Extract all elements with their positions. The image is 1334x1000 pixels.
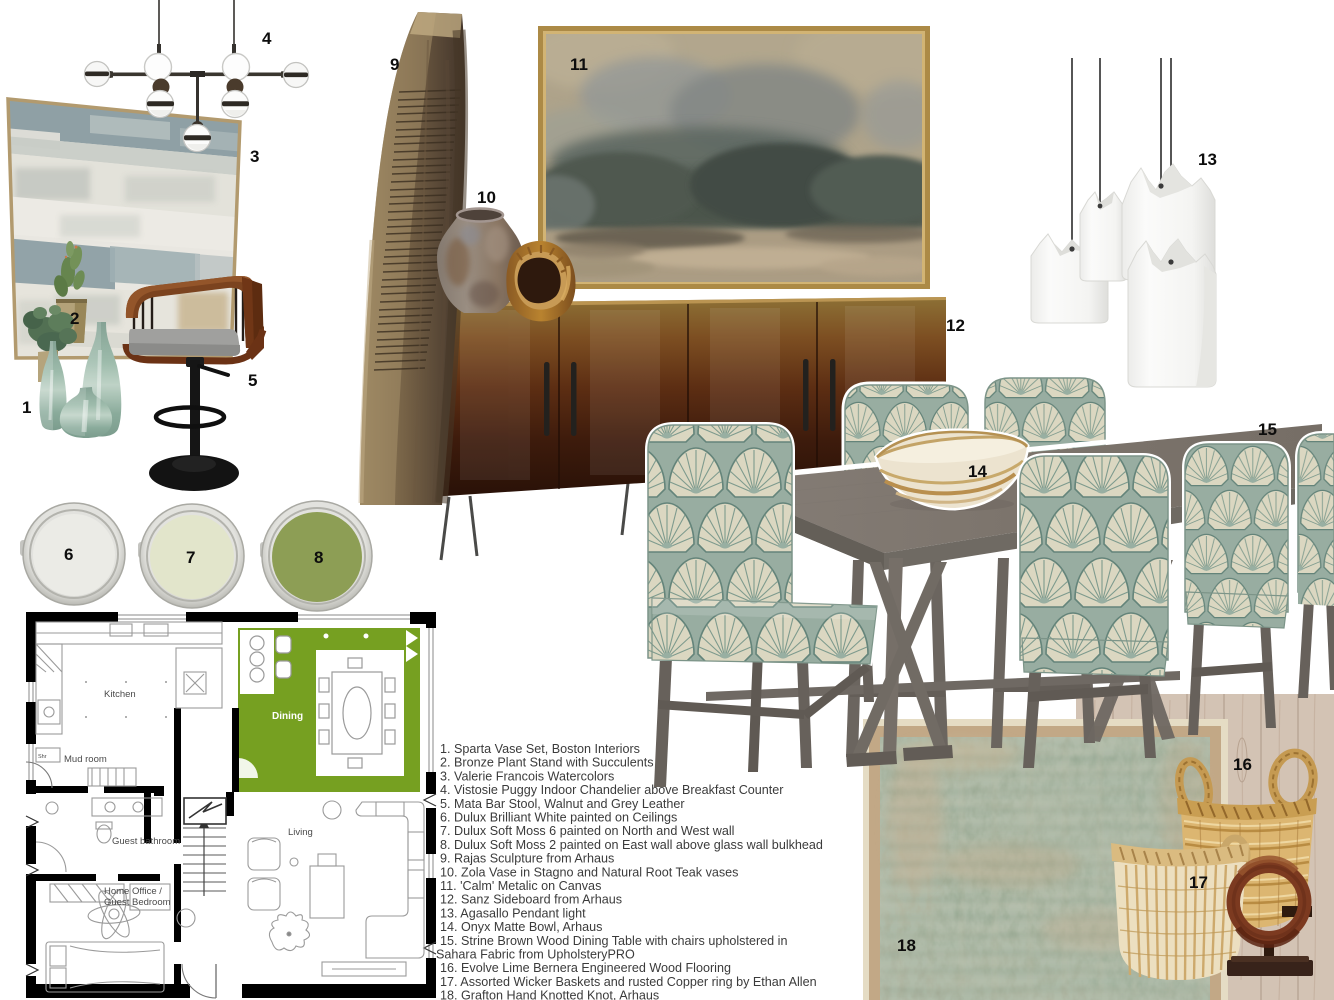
svg-text:10. Zola Vase in Stagno and Na: 10. Zola Vase in Stagno and Natural Root… (440, 865, 738, 879)
svg-text:16: 16 (1233, 755, 1252, 774)
svg-text:Sahara Fabric from UpholsteryP: Sahara Fabric from UpholsteryPRO (436, 948, 635, 962)
svg-text:11. 'Calm' Metalic on Canvas: 11. 'Calm' Metalic on Canvas (440, 879, 601, 893)
svg-text:12: 12 (946, 316, 965, 335)
svg-text:6: 6 (64, 545, 73, 564)
svg-text:13. Agasallo Pendant light: 13. Agasallo Pendant light (440, 906, 586, 920)
svg-text:18: 18 (897, 936, 916, 955)
svg-text:11: 11 (570, 55, 588, 74)
svg-text:18. Grafton Hand Knotted Knot,: 18. Grafton Hand Knotted Knot, Arhaus (440, 989, 659, 1000)
svg-text:Living: Living (288, 827, 313, 838)
svg-text:Guest bathroom: Guest bathroom (112, 836, 180, 847)
svg-text:2: 2 (70, 309, 79, 328)
svg-text:10: 10 (477, 188, 496, 207)
svg-text:8: 8 (314, 548, 323, 567)
svg-text:14: 14 (968, 462, 987, 481)
svg-text:6. Dulux Brilliant White paint: 6. Dulux Brilliant White painted on Ceil… (440, 811, 677, 825)
svg-text:Dining: Dining (272, 711, 303, 722)
svg-text:4: 4 (262, 29, 272, 48)
svg-text:Shr: Shr (38, 754, 47, 760)
svg-text:14. Onyx Matte Bowl, Arhaus: 14. Onyx Matte Bowl, Arhaus (440, 920, 602, 934)
svg-text:7. Dulux Soft Moss 6 painted o: 7. Dulux Soft Moss 6 painted on North an… (440, 824, 734, 838)
svg-text:12. Sanz Sideboard from Arhaus: 12. Sanz Sideboard from Arhaus (440, 893, 622, 907)
svg-text:9: 9 (390, 55, 399, 74)
svg-text:Guest Bedroom: Guest Bedroom (104, 897, 171, 908)
svg-text:4. Vistosie Puggy Indoor Chand: 4. Vistosie Puggy Indoor Chandelier abov… (440, 783, 784, 797)
svg-text:13: 13 (1198, 150, 1217, 169)
svg-text:7: 7 (186, 548, 195, 567)
svg-text:15: 15 (1258, 420, 1277, 439)
svg-text:Home Office /: Home Office / (104, 886, 162, 897)
svg-text:3: 3 (250, 147, 259, 166)
svg-text:1: 1 (22, 398, 31, 417)
svg-text:2. Bronze Plant Stand with Suc: 2. Bronze Plant Stand with Succulents (440, 756, 654, 770)
svg-text:1. Sparta Vase Set, Boston Int: 1. Sparta Vase Set, Boston Interiors (440, 742, 640, 756)
svg-text:8. Dulux Soft Moss 2 painted o: 8. Dulux Soft Moss 2 painted on East wal… (440, 838, 823, 852)
svg-text:16. Evolve Lime Bernera Engine: 16. Evolve Lime Bernera Engineered Wood … (440, 961, 731, 975)
svg-text:5. Mata Bar Stool, Walnut and: 5. Mata Bar Stool, Walnut and Grey Leath… (440, 797, 685, 811)
svg-text:15. Strine Brown Wood Dining T: 15. Strine Brown Wood Dining Table with … (440, 934, 787, 948)
svg-text:Kitchen: Kitchen (104, 689, 136, 700)
svg-text:3. Valerie Francois Watercolor: 3. Valerie Francois Watercolors (440, 769, 614, 783)
svg-text:17. Assorted Wicker Baskets an: 17. Assorted Wicker Baskets and rusted C… (440, 975, 817, 989)
svg-text:9. Rajas Sculpture from Arhaus: 9. Rajas Sculpture from Arhaus (440, 852, 614, 866)
svg-text:5: 5 (248, 371, 257, 390)
svg-text:Mud room: Mud room (64, 754, 107, 765)
svg-text:17: 17 (1189, 873, 1208, 892)
